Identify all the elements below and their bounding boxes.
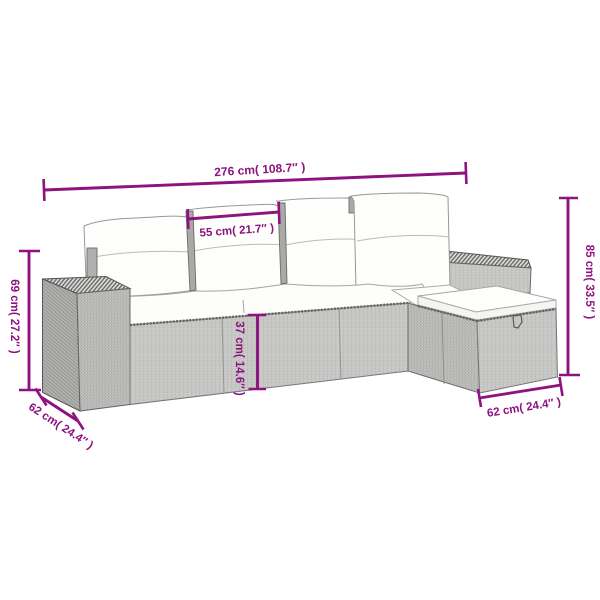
svg-text:37 cm( 14.6″ ): 37 cm( 14.6″ ) [233,321,245,396]
svg-text:62 cm( 24.4″ ): 62 cm( 24.4″ ) [486,396,562,420]
svg-text:276 cm( 108.7″ ): 276 cm( 108.7″ ) [214,160,306,179]
svg-text:69 cm( 27.2″ ): 69 cm( 27.2″ ) [8,279,20,354]
svg-text:85 cm( 33.5″ ): 85 cm( 33.5″ ) [583,245,595,320]
